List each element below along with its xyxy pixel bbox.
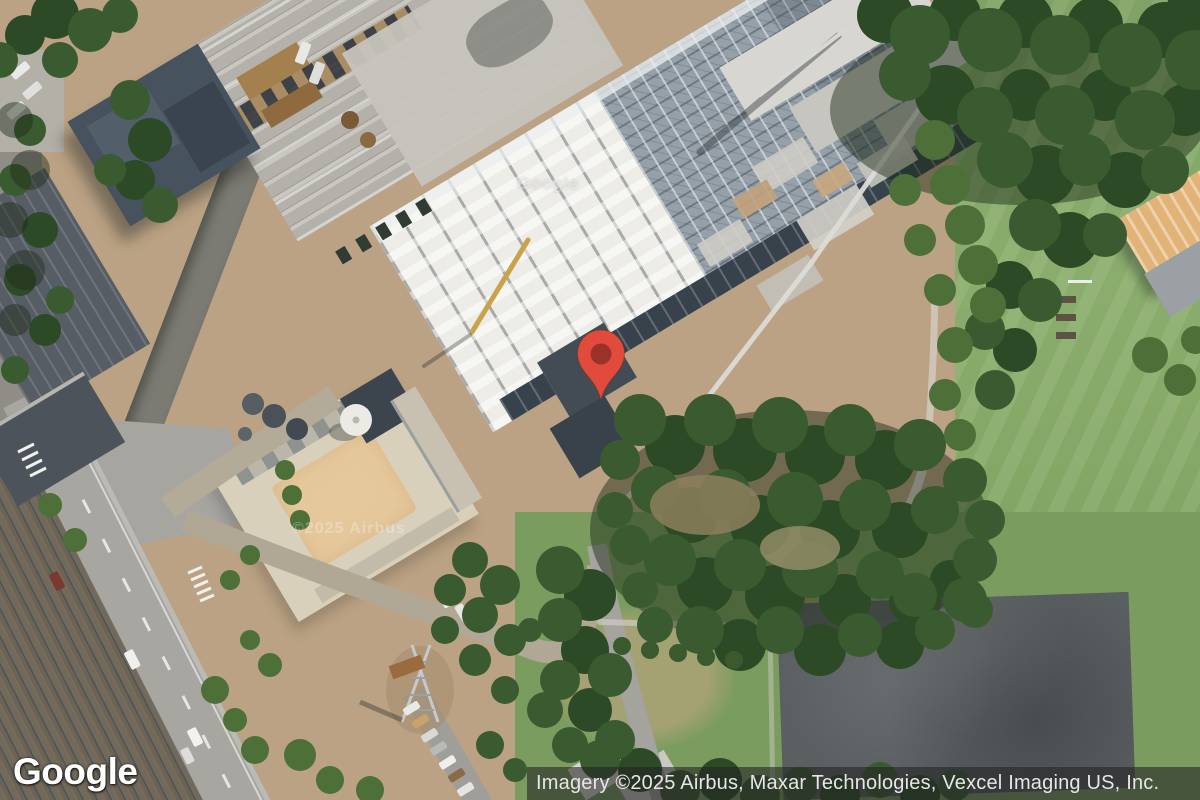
google-logo[interactable]: Google (13, 751, 137, 793)
tower-crane (424, 30, 845, 366)
tile-watermark-google: Google (517, 174, 579, 194)
location-pin[interactable] (578, 330, 625, 400)
lattice-tower (360, 645, 454, 734)
trees (0, 0, 1200, 800)
pin-body[interactable] (578, 330, 625, 400)
waste-bins (335, 198, 432, 265)
attribution-text: Imagery ©2025 Airbus, Maxar Technologies… (536, 767, 1159, 800)
attribution-bar: Imagery ©2025 Airbus, Maxar Technologies… (527, 767, 1200, 800)
park-benches (1056, 280, 1092, 339)
map-canvas[interactable]: Google ©2025 Airbus Google Imagery ©2025… (0, 0, 1200, 800)
pin-inner-dot (591, 344, 612, 365)
tile-watermark-airbus: ©2025 Airbus (292, 520, 406, 538)
map-detail-layer (0, 0, 1200, 800)
